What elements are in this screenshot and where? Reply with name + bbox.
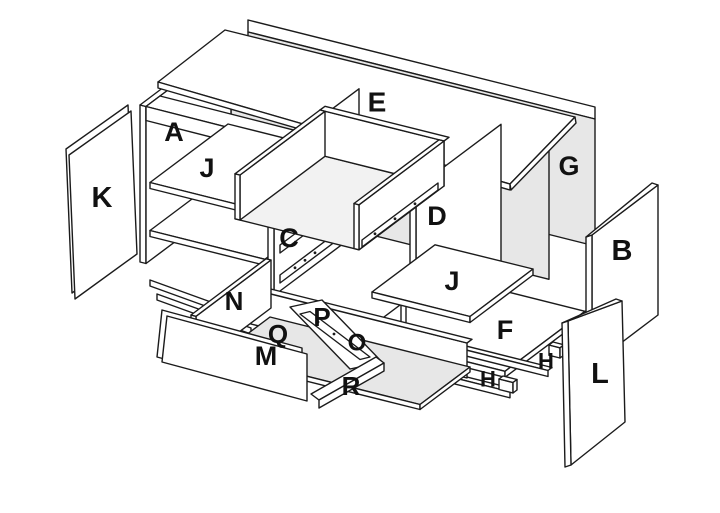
assembly-diagram-page: EAJKGDCBJNPQMOFHHLR xyxy=(0,0,720,513)
part-label-rail-strip: R xyxy=(342,371,361,401)
upper-drawer-right-front-edge xyxy=(354,204,359,250)
screw-hole xyxy=(374,232,377,235)
left-side-panel-front-edge xyxy=(140,105,146,264)
part-label-connector-block-front: H xyxy=(480,367,496,392)
part-label-top-panel: E xyxy=(368,87,387,118)
screw-hole xyxy=(394,217,397,220)
part-label-drawer-back: P xyxy=(313,302,330,332)
part-label-right-shelf: J xyxy=(444,266,459,296)
part-label-bottom-panel: F xyxy=(497,315,514,345)
part-label-left-shelf: J xyxy=(199,153,214,183)
part-label-drawer-slide-rails: C xyxy=(279,223,299,253)
assembly-diagram: EAJKGDCBJNPQMOFHHLR xyxy=(0,0,720,513)
part-label-connector-block-back: H xyxy=(538,349,554,374)
screw-hole xyxy=(304,259,307,262)
part-label-drawer-front: M xyxy=(255,341,278,371)
screw-hole xyxy=(294,266,297,269)
part-label-drawer-side-left: N xyxy=(225,286,244,316)
screw-hole xyxy=(314,251,317,254)
part-label-right-side-panel: B xyxy=(612,235,633,267)
screw-hole xyxy=(333,333,336,336)
part-label-right-partition: D xyxy=(427,201,447,231)
connector-block-front-end xyxy=(513,380,517,394)
screw-hole xyxy=(414,202,417,205)
part-label-drawer-runner: O xyxy=(348,330,367,357)
part-label-right-door: L xyxy=(591,358,609,390)
part-label-left-side-panel: A xyxy=(164,117,184,147)
part-label-back-panel: G xyxy=(558,151,579,181)
part-label-left-door: K xyxy=(92,182,113,214)
upper-drawer-left-front-edge xyxy=(235,174,240,220)
